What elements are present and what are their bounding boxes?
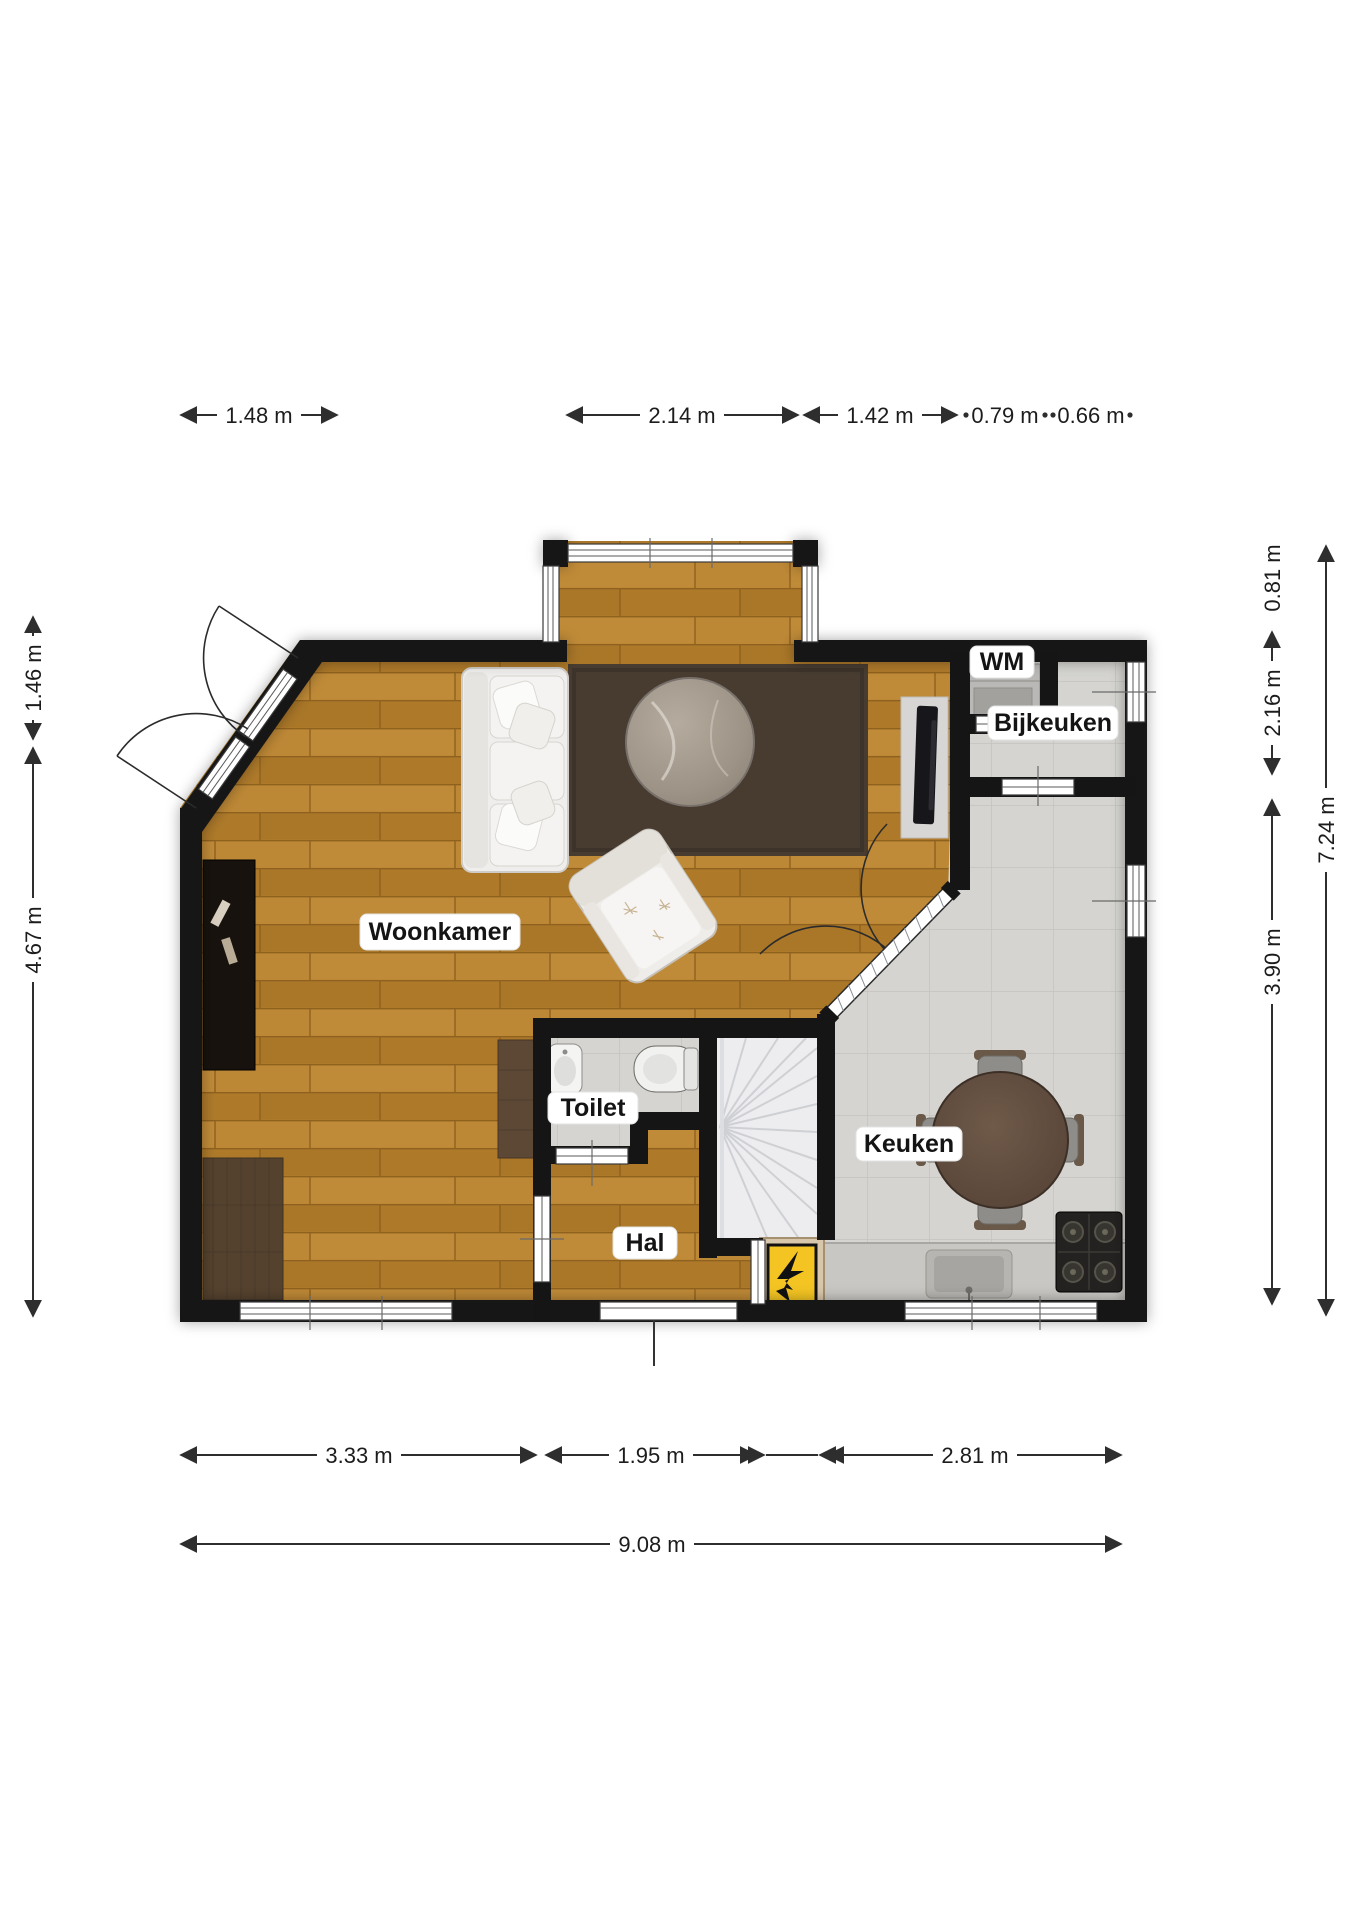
dim-right-4: 7.24 m [1314,796,1339,863]
room-label-keuken-text: Keuken [864,1130,954,1158]
stove [1056,1212,1122,1292]
room-label-keuken: Keuken [856,1127,962,1161]
kitchen-sink [926,1250,1012,1300]
room-label-toilet: Toilet [548,1092,638,1124]
dim-bottom-3: 2.81 m [941,1443,1008,1468]
dim-top-3: 1.42 m [846,403,913,428]
sideboard [203,1158,283,1300]
floorplan-page: Woonkamer Bijkeuken WM Keuken Toilet Hal [0,0,1358,1920]
dim-bottom-2: 1.95 m [617,1443,684,1468]
meter-cupboard-door [751,1240,765,1304]
coffee-table [626,678,754,806]
room-label-woonkamer: Woonkamer [360,914,520,950]
room-label-hal-text: Hal [626,1229,665,1257]
dim-right-2: 2.16 m [1260,669,1285,736]
floorplan-canvas: Woonkamer Bijkeuken WM Keuken Toilet Hal [0,0,1358,1920]
dim-left-2: 4.67 m [21,906,46,973]
dim-top-4: 0.79 m [971,403,1038,428]
dim-right-1: 0.81 m [1260,544,1285,611]
tv-board [901,697,948,838]
dim-right-3: 3.90 m [1260,928,1285,995]
dim-left-1: 1.46 m [21,644,46,711]
stairs [717,1038,817,1240]
tv-icon [913,706,938,825]
media-console [203,860,255,1070]
dim-bottom-1: 3.33 m [325,1443,392,1468]
toilet-bowl [634,1046,698,1092]
room-label-woonkamer-text: Woonkamer [369,918,512,946]
dim-top-1: 1.48 m [225,403,292,428]
dim-top-5: 0.66 m [1057,403,1124,428]
room-label-wm-text: WM [980,648,1024,676]
room-label-hal: Hal [613,1227,677,1259]
meter-cupboard [760,1238,824,1308]
dim-top-2: 2.14 m [648,403,715,428]
dim-bottom-4: 9.08 m [618,1532,685,1557]
room-label-wm: WM [970,646,1034,678]
room-label-toilet-text: Toilet [561,1094,626,1122]
room-label-bijkeuken: Bijkeuken [988,706,1118,740]
sofa [462,668,568,872]
room-label-bijkeuken-text: Bijkeuken [994,709,1112,737]
toilet-sink [548,1044,582,1094]
